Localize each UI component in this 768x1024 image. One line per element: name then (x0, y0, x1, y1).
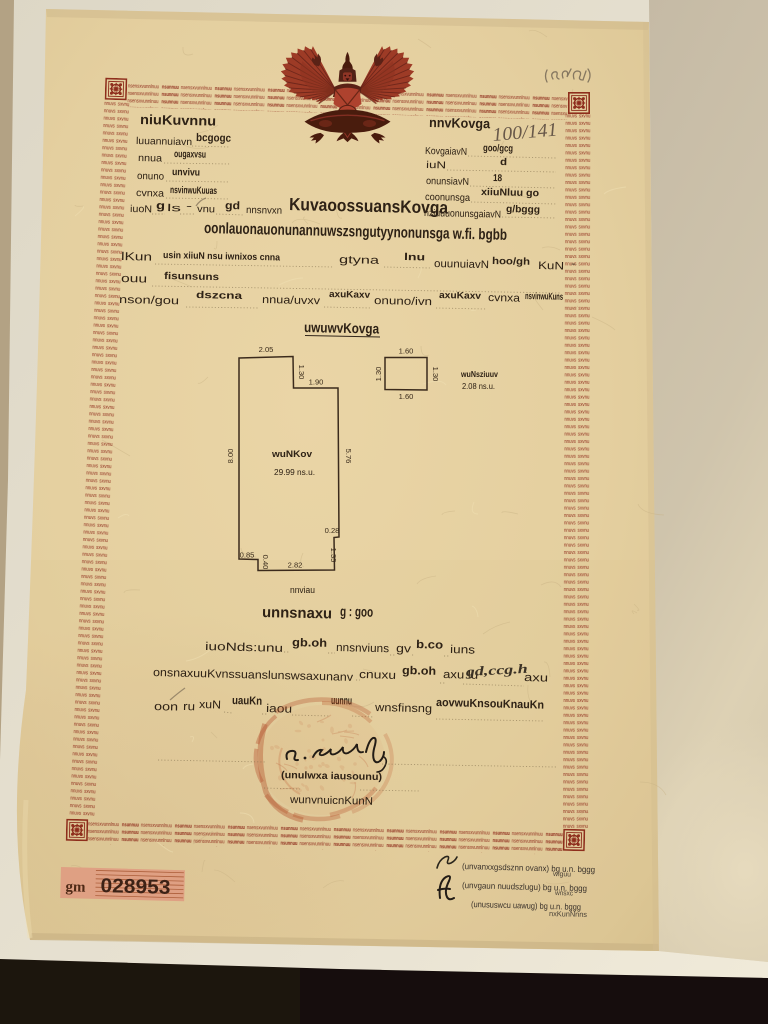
svg-text:ouu: ouu (121, 273, 147, 286)
svg-text:g/bggg: g/bggg (506, 204, 540, 216)
svg-text:niuKuvnnu: niuKuvnnu (140, 112, 216, 129)
svg-text:nnvKovga: nnvKovga (429, 115, 491, 131)
svg-text:xiiuNluu go: xiiuNluu go (481, 187, 539, 199)
svg-text:cnuxu: cnuxu (359, 669, 396, 682)
svg-text:2.82: 2.82 (288, 561, 303, 570)
svg-text:1.60: 1.60 (399, 347, 414, 356)
svg-text:gb.oh: gb.oh (402, 665, 436, 678)
svg-text:d: d (500, 157, 507, 168)
svg-text:nnua/uvxv: nnua/uvxv (262, 294, 321, 307)
svg-text:1.90: 1.90 (309, 378, 324, 387)
svg-text:1.30: 1.30 (297, 365, 306, 380)
svg-text:oon: oon (154, 701, 178, 714)
svg-text:iuoNds:unu: iuoNds:unu (205, 641, 283, 655)
svg-text:axu: axu (524, 672, 548, 685)
svg-text:ls: ls (167, 203, 181, 214)
svg-text:luuannuiavn: luuannuiavn (136, 136, 192, 148)
svg-text:vnu: vnu (197, 204, 215, 215)
svg-text:nxKunNnns: nxKunNnns (549, 909, 587, 919)
svg-text:nsvinwuKuns: nsvinwuKuns (525, 291, 563, 303)
svg-text:-: - (186, 201, 192, 212)
svg-text:iuns: iuns (450, 644, 476, 657)
svg-text:1.30: 1.30 (374, 367, 383, 382)
svg-text:29.99 ns.u.: 29.99 ns.u. (274, 468, 315, 477)
svg-text:wnsfinsng: wnsfinsng (374, 702, 432, 715)
svg-text:1.60: 1.60 (399, 392, 414, 401)
svg-text:b.co: b.co (416, 639, 443, 652)
svg-text:KovgaiavN: KovgaiavN (425, 146, 467, 158)
svg-text:(unulwxa iausounu): (unulwxa iausounu) (281, 770, 382, 783)
svg-text:gv: gv (396, 643, 412, 655)
svg-text:lnu: lnu (404, 252, 425, 263)
svg-text:cvnxa: cvnxa (136, 188, 165, 200)
svg-text:iuoN: iuoN (130, 204, 152, 215)
svg-text:wuNKov: wuNKov (271, 449, 312, 459)
svg-text:iuN: iuN (426, 160, 446, 171)
svg-text:uwuwvKovga: uwuwvKovga (304, 319, 379, 337)
svg-text:ru: ru (183, 701, 195, 713)
svg-text:wnsxc: wnsxc (554, 890, 574, 898)
svg-text:gm: gm (65, 879, 86, 896)
svg-text:0.28: 0.28 (325, 526, 340, 535)
svg-text:2.05: 2.05 (259, 345, 274, 354)
svg-text:wunvnuicnKunN: wunvnuicnKunN (289, 794, 373, 808)
svg-text:gd: gd (225, 200, 240, 212)
svg-text:ouunuiavN: ouunuiavN (434, 258, 489, 271)
svg-text:g: g (156, 200, 165, 212)
svg-text:onuno/ivn: onuno/ivn (374, 295, 432, 308)
svg-text:hoo/gh: hoo/gh (492, 256, 530, 268)
svg-text:ougaxvsu: ougaxvsu (174, 149, 206, 161)
svg-text:bcgogc: bcgogc (196, 132, 231, 145)
svg-text:gtyna: gtyna (339, 254, 381, 267)
svg-text:dszcna: dszcna (196, 290, 243, 302)
svg-text:cvnxa: cvnxa (488, 292, 521, 305)
svg-text:xuN: xuN (199, 699, 221, 712)
svg-text:nnviau: nnviau (290, 585, 315, 595)
svg-text:axuKaxv: axuKaxv (329, 289, 371, 301)
svg-text:1.30: 1.30 (431, 367, 440, 382)
svg-text:5.76: 5.76 (344, 449, 353, 464)
svg-text:nson/gou: nson/gou (119, 294, 179, 307)
svg-text:lKun: lKun (121, 251, 152, 264)
svg-text:goo/gcg: goo/gcg (483, 143, 513, 155)
svg-text:KuvaoossuansKovga: KuvaoossuansKovga (289, 194, 449, 218)
svg-text:wuNsziuuv: wuNsziuuv (460, 369, 498, 379)
svg-text:028953: 028953 (100, 875, 171, 899)
svg-text:axuKaxv: axuKaxv (439, 290, 482, 302)
svg-text:unnsnaxu: unnsnaxu (262, 604, 332, 622)
svg-text:onunsiavN: onunsiavN (426, 176, 469, 188)
svg-text:unvivu: unvivu (172, 167, 200, 179)
svg-text:nnsnviuns: nnsnviuns (336, 642, 390, 655)
svg-text:KuN: KuN (538, 260, 564, 273)
svg-text:gb.oh: gb.oh (292, 637, 327, 650)
svg-text:0.85: 0.85 (240, 551, 255, 560)
svg-text:18: 18 (493, 173, 503, 184)
svg-text:onuno: onuno (137, 171, 165, 183)
svg-text:wiguu: wiguu (552, 871, 571, 878)
svg-text:8.00: 8.00 (226, 449, 235, 464)
svg-text:nsvinwuKuuas: nsvinwuKuuas (170, 185, 218, 197)
svg-text:g : goo: g : goo (340, 603, 373, 620)
svg-text:1.35: 1.35 (329, 548, 338, 563)
svg-text:2.08 ns.u.: 2.08 ns.u. (462, 382, 495, 391)
svg-text:nnua: nnua (138, 153, 163, 165)
svg-text:fisunsuns: fisunsuns (164, 271, 220, 283)
svg-text:uauKn: uauKn (232, 695, 262, 708)
svg-text:0.40: 0.40 (261, 555, 270, 570)
svg-text:-: - (571, 258, 577, 270)
svg-text:nnsnvxn: nnsnvxn (246, 205, 282, 217)
